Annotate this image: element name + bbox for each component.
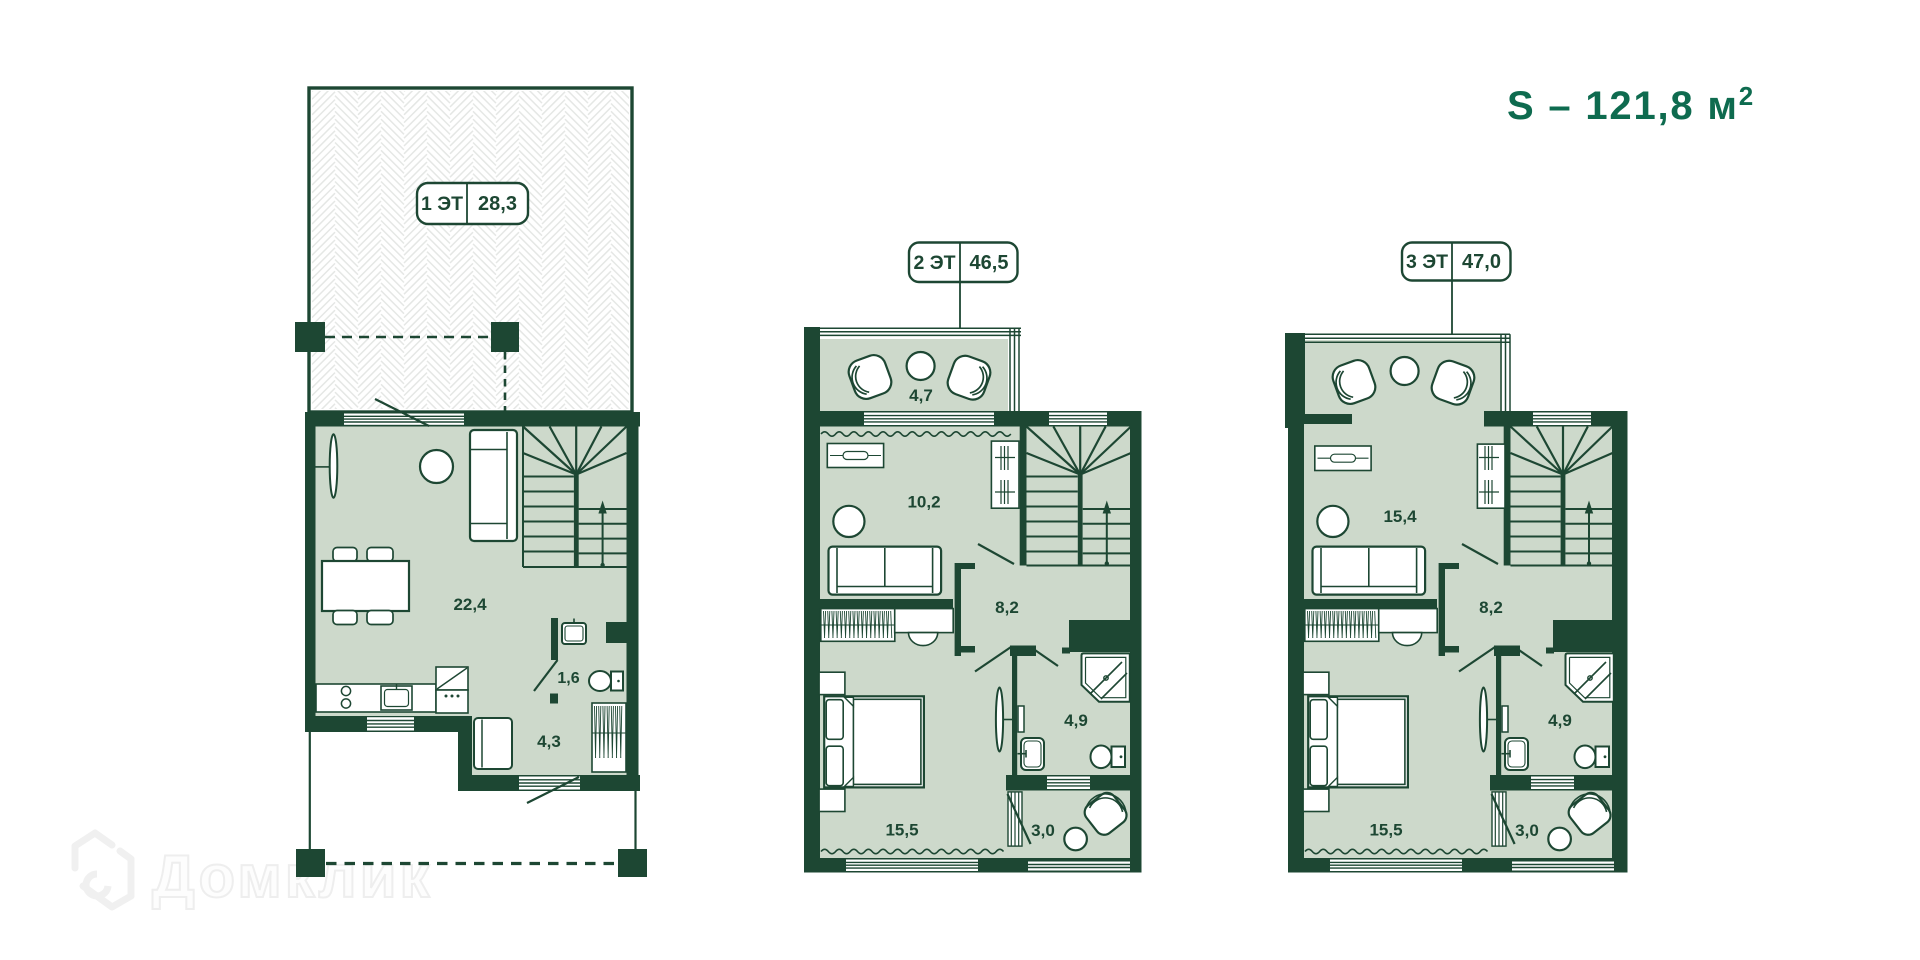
svg-text:22,4: 22,4 [453, 595, 487, 614]
svg-text:15,5: 15,5 [885, 821, 918, 840]
svg-text:1,6: 1,6 [557, 670, 579, 687]
svg-text:3,0: 3,0 [1031, 821, 1055, 840]
svg-text:28,3: 28,3 [478, 193, 517, 215]
svg-text:S – 121,8 м2: S – 121,8 м2 [1507, 81, 1755, 128]
svg-text:3,0: 3,0 [1515, 821, 1539, 840]
svg-text:10,2: 10,2 [907, 493, 940, 512]
svg-text:1 ЭТ: 1 ЭТ [421, 193, 463, 215]
svg-text:8,2: 8,2 [1479, 598, 1503, 617]
svg-text:Домклик: Домклик [152, 843, 433, 910]
svg-text:15,4: 15,4 [1383, 507, 1417, 526]
svg-text:3 ЭТ: 3 ЭТ [1406, 251, 1448, 273]
svg-text:4,9: 4,9 [1548, 711, 1572, 730]
svg-text:46,5: 46,5 [970, 252, 1009, 274]
svg-text:47,0: 47,0 [1462, 251, 1501, 273]
svg-text:4,3: 4,3 [537, 732, 561, 751]
svg-text:15,5: 15,5 [1369, 821, 1402, 840]
svg-text:4,9: 4,9 [1064, 711, 1088, 730]
svg-text:2 ЭТ: 2 ЭТ [913, 252, 955, 274]
svg-text:8,2: 8,2 [995, 598, 1019, 617]
svg-text:4,7: 4,7 [909, 386, 933, 405]
